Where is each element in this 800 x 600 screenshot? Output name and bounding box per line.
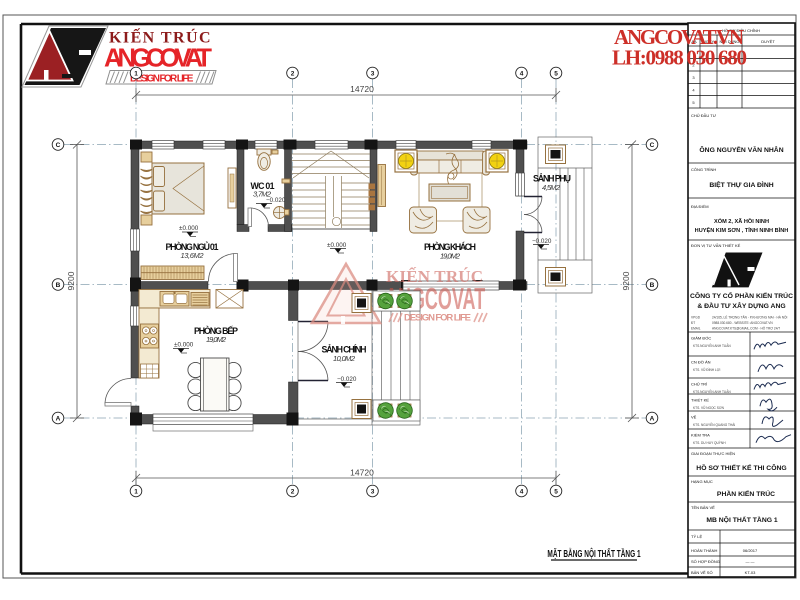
svg-text:HUYỆN KIM SƠN , TỈNH NINH BÌNH: HUYỆN KIM SƠN , TỈNH NINH BÌNH bbox=[695, 226, 789, 234]
svg-text:HẠNG MỤC: HẠNG MỤC bbox=[691, 479, 713, 484]
svg-text:A: A bbox=[650, 416, 655, 423]
svg-text:24/165, LÊ TRỌNG TẤN - P.KHƯƠN: 24/165, LÊ TRỌNG TẤN - P.KHƯƠNG MAI - HÀ… bbox=[712, 315, 788, 320]
svg-text:KTS.NGUYỄN ANH TUẤN: KTS.NGUYỄN ANH TUẤN bbox=[693, 389, 731, 394]
svg-text:±0.000: ±0.000 bbox=[179, 225, 199, 232]
svg-text:MẶT BẰNG NỘI THẤT TẦNG 1: MẶT BẰNG NỘI THẤT TẦNG 1 bbox=[547, 546, 640, 559]
svg-text:EMAIL: EMAIL bbox=[691, 327, 701, 331]
svg-text:9200: 9200 bbox=[66, 271, 76, 290]
svg-text:HOÀN THÀNH: HOÀN THÀNH bbox=[691, 548, 717, 553]
svg-text:ANGCOVAT.KTS@GMAIL.COM - HỖ TR: ANGCOVAT.KTS@GMAIL.COM - HỖ TRỢ 24/7 bbox=[712, 326, 780, 331]
svg-text:XÓM 2, XÃ HỒI NINH: XÓM 2, XÃ HỒI NINH bbox=[714, 217, 769, 225]
svg-text:±0.000: ±0.000 bbox=[327, 242, 347, 249]
svg-text:4: 4 bbox=[520, 489, 524, 496]
svg-text:ĐỊA ĐIỂM: ĐỊA ĐIỂM bbox=[691, 204, 709, 209]
svg-text:KTS. DU HUY QUỲNH: KTS. DU HUY QUỲNH bbox=[693, 441, 726, 445]
svg-text:SẢNH CHÍNH: SẢNH CHÍNH bbox=[322, 344, 367, 355]
svg-text:DUYỆT: DUYỆT bbox=[761, 39, 775, 44]
svg-text:4: 4 bbox=[520, 71, 524, 78]
svg-text:4,5M2: 4,5M2 bbox=[542, 183, 561, 192]
svg-text:SẢNH PHỤ: SẢNH PHỤ bbox=[533, 173, 571, 184]
svg-text:−0.020: −0.020 bbox=[266, 197, 286, 204]
svg-text:— —: — — bbox=[745, 559, 754, 564]
svg-text:0988.030.680 - WEBSITE: ANGCOV: 0988.030.680 - WEBSITE: ANGCOVAT.VN bbox=[712, 321, 773, 325]
svg-text:TỶ LỆ: TỶ LỆ bbox=[691, 534, 702, 539]
svg-text:KT-03: KT-03 bbox=[745, 570, 756, 575]
svg-text:ĐƠN VỊ TƯ VẤN THIẾT KẾ: ĐƠN VỊ TƯ VẤN THIẾT KẾ bbox=[691, 243, 741, 248]
svg-text:3: 3 bbox=[371, 71, 375, 78]
svg-text:LH:0988 030 680: LH:0988 030 680 bbox=[612, 46, 747, 70]
svg-text:KTS. VŨ ĐÌNH LỢI: KTS. VŨ ĐÌNH LỢI bbox=[693, 367, 720, 372]
svg-text:2: 2 bbox=[291, 489, 295, 496]
svg-text:9200: 9200 bbox=[621, 271, 631, 290]
svg-text:14720: 14720 bbox=[350, 468, 374, 478]
svg-text:CN ĐỒ ÁN: CN ĐỒ ÁN bbox=[691, 360, 711, 365]
svg-text:GIAI ĐOẠN THỰC HIỆN: GIAI ĐOẠN THỰC HIỆN bbox=[691, 451, 735, 456]
svg-text:SỐ HỢP ĐỒNG: SỐ HỢP ĐỒNG bbox=[691, 559, 720, 564]
svg-text:06/2017: 06/2017 bbox=[743, 548, 758, 553]
svg-text:3: 3 bbox=[371, 489, 375, 496]
svg-text:ĐT: ĐT bbox=[691, 321, 695, 325]
svg-text:BẢN VẼ SỐ: BẢN VẼ SỐ bbox=[691, 570, 713, 575]
svg-text:C: C bbox=[56, 142, 61, 149]
svg-text:−0.020: −0.020 bbox=[337, 376, 357, 383]
svg-text:KIỂM TRA: KIỂM TRA bbox=[691, 433, 710, 438]
svg-text:C: C bbox=[650, 142, 655, 149]
svg-text:13,6M2: 13,6M2 bbox=[181, 251, 205, 260]
svg-text:CHỦ TRÌ: CHỦ TRÌ bbox=[691, 382, 707, 387]
svg-text:THIẾT KẾ: THIẾT KẾ bbox=[691, 398, 709, 403]
svg-text:14720: 14720 bbox=[350, 84, 374, 94]
svg-text:GIÁM ĐỐC: GIÁM ĐỐC bbox=[691, 336, 711, 341]
svg-text:B: B bbox=[56, 282, 61, 289]
svg-text:A: A bbox=[56, 416, 61, 423]
svg-text:19,0M2: 19,0M2 bbox=[206, 335, 227, 344]
svg-text:BIỆT THỰ GIA ĐÌNH: BIỆT THỰ GIA ĐÌNH bbox=[709, 180, 773, 189]
svg-text:PHÒNG KHÁCH: PHÒNG KHÁCH bbox=[424, 241, 476, 252]
svg-text:19,0M2: 19,0M2 bbox=[440, 252, 461, 261]
svg-text:5: 5 bbox=[554, 489, 558, 496]
svg-text:KTS. NGUYỄN QUANG THÁI: KTS. NGUYỄN QUANG THÁI bbox=[693, 422, 735, 427]
svg-text:VẼ: VẼ bbox=[691, 415, 697, 420]
svg-text:KTS. VŨ NGỌC SƠN: KTS. VŨ NGỌC SƠN bbox=[693, 405, 725, 410]
svg-text:ANGCOVAT: ANGCOVAT bbox=[104, 45, 212, 73]
svg-text:−0.020: −0.020 bbox=[532, 238, 552, 245]
svg-text:1: 1 bbox=[134, 71, 138, 78]
svg-text:KTS.NGUYỄN ANH TUẤN: KTS.NGUYỄN ANH TUẤN bbox=[693, 343, 731, 348]
svg-text:2: 2 bbox=[291, 71, 295, 78]
svg-text:CÔNG TRÌNH: CÔNG TRÌNH bbox=[691, 167, 716, 172]
svg-text:ÔNG NGUYỄN VĂN NHÂN: ÔNG NGUYỄN VĂN NHÂN bbox=[699, 145, 783, 154]
svg-text:DESIGN FOR LIFE: DESIGN FOR LIFE bbox=[404, 313, 472, 324]
svg-text:TÊN BẢN VẼ: TÊN BẢN VẼ bbox=[691, 505, 715, 510]
svg-text:1: 1 bbox=[134, 489, 138, 496]
svg-text:B: B bbox=[650, 282, 655, 289]
svg-text:5: 5 bbox=[554, 71, 558, 78]
svg-text:±0.000: ±0.000 bbox=[174, 342, 194, 349]
svg-text:CHỦ ĐẦU TƯ: CHỦ ĐẦU TƯ bbox=[691, 113, 717, 118]
svg-text:VPGD: VPGD bbox=[691, 316, 701, 320]
svg-text:10,0M2: 10,0M2 bbox=[333, 354, 356, 363]
